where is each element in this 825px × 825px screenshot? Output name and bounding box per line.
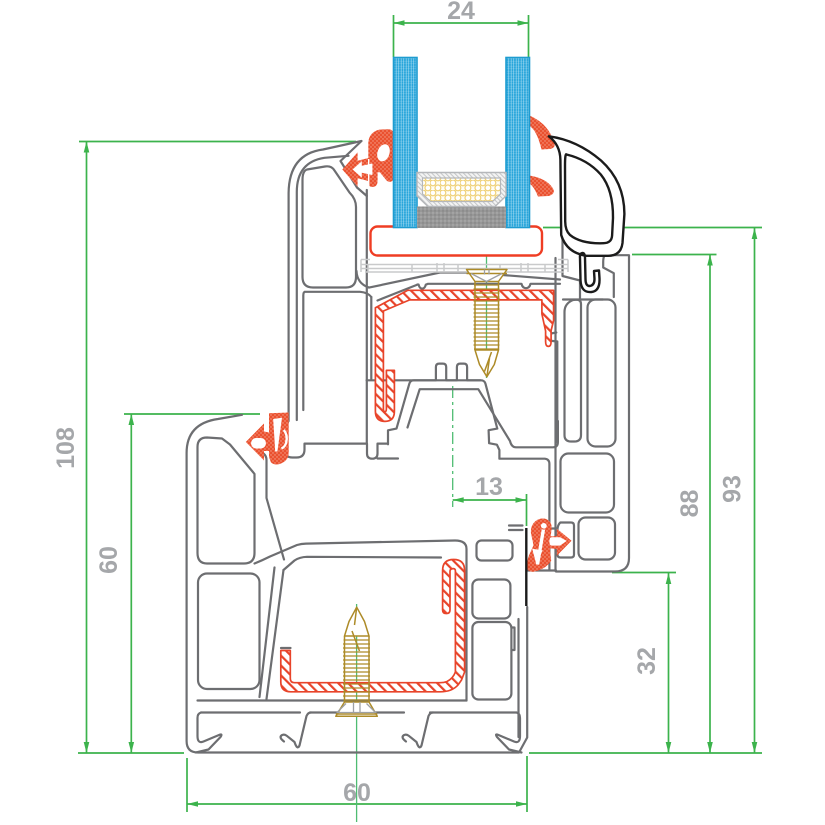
svg-text:24: 24	[447, 0, 475, 25]
svg-text:93: 93	[719, 475, 747, 503]
svg-text:60: 60	[95, 546, 123, 574]
svg-text:32: 32	[633, 647, 661, 675]
svg-text:13: 13	[475, 473, 503, 501]
svg-text:60: 60	[343, 779, 371, 807]
svg-text:108: 108	[52, 427, 80, 469]
svg-text:88: 88	[676, 490, 704, 518]
